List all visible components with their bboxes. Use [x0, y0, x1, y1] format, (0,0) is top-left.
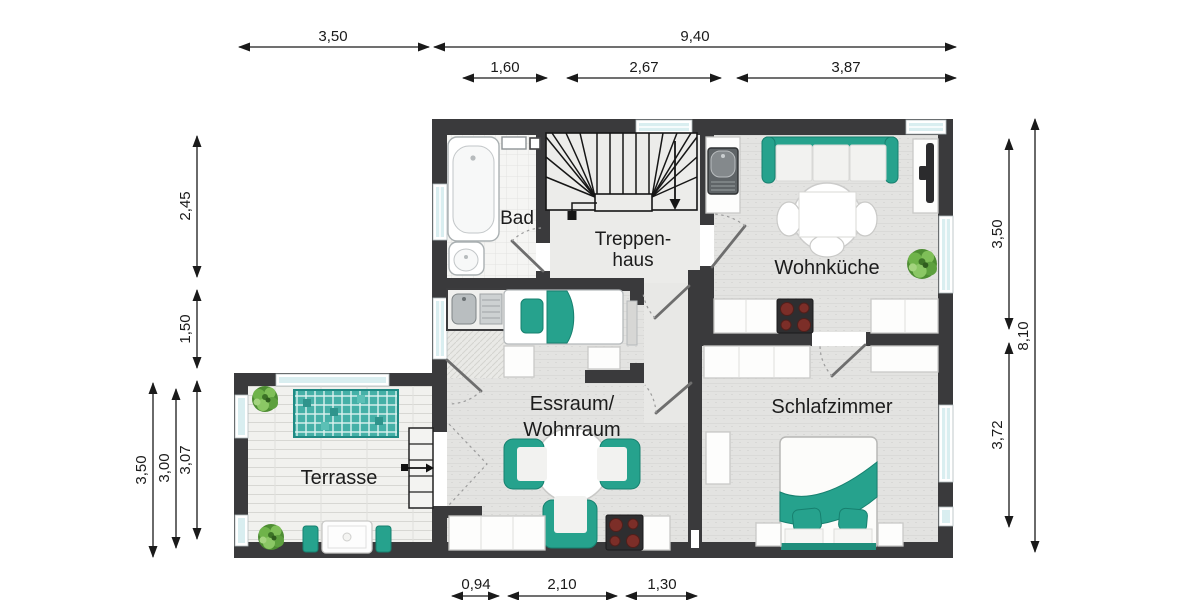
room-label-treppenhaus-2: haus — [612, 250, 653, 271]
window-terrace-top — [276, 374, 389, 386]
cabinet-tall — [706, 432, 730, 484]
bed-pillow — [521, 299, 543, 333]
dim-label-left-terrace-mid: 3,00 — [156, 453, 173, 482]
dim-label-right-bedroom: 3,72 — [989, 420, 1006, 449]
pool — [294, 390, 398, 437]
dim-label-right-total: 8,10 — [1015, 321, 1032, 350]
double-bed — [780, 437, 877, 550]
table-top — [799, 192, 856, 237]
nightstand-left — [756, 523, 781, 546]
armchair-left — [504, 439, 547, 489]
wall-kitchen-bottom-left — [702, 332, 812, 346]
wardrobe-left — [704, 346, 810, 378]
plant-icon — [907, 249, 937, 279]
room-label-bad: Bad — [500, 208, 534, 229]
terrace-chair-left — [303, 526, 318, 552]
dim-label-left-bad: 2,45 — [177, 191, 194, 220]
plant-icon — [252, 386, 278, 412]
window-left-entry — [433, 298, 447, 359]
window-top-kitchen — [906, 120, 946, 134]
dim-label-top-stair: 2,67 — [629, 59, 658, 76]
kitchen-sink-small — [447, 289, 507, 330]
toilet — [449, 242, 484, 275]
dim-label-bottom-hall: 1,30 — [647, 576, 676, 593]
dim-label-top-kitchen: 3,87 — [831, 59, 860, 76]
sofa — [762, 137, 898, 183]
dim-label-left-niche: 1,50 — [177, 314, 194, 343]
corridor-floor — [644, 283, 688, 423]
tv-sideboard — [913, 139, 938, 213]
dim-label-top-main: 9,40 — [680, 28, 709, 45]
armchair-bottom — [543, 496, 597, 548]
chair-right — [853, 202, 877, 236]
dim-label-top-bad: 1,60 — [490, 59, 519, 76]
tv-icon — [926, 143, 934, 203]
stair-start-marker — [568, 211, 577, 220]
chair-bottom — [810, 235, 844, 257]
window-right-small — [939, 507, 953, 526]
dim-label-bottom-door: 0,94 — [461, 576, 490, 593]
niche-cabinet-left — [504, 346, 534, 377]
nightstand-right — [878, 523, 903, 546]
window-terrace-left-upper — [235, 395, 248, 438]
dim-label-top-terrace: 3,50 — [318, 28, 347, 45]
terrace-table — [322, 521, 372, 553]
stove-hob-kitchen — [777, 299, 813, 333]
bath-shelf — [502, 137, 540, 149]
bed-blanket — [547, 291, 574, 343]
stair-landing — [595, 194, 652, 211]
stove-hob-essraum — [606, 515, 643, 550]
room-label-essraum-1: Essraum/ — [530, 393, 615, 415]
wall-slot — [691, 530, 699, 548]
window-right-kitchen — [939, 216, 953, 293]
dim-label-left-terrace-inner: 3,07 — [177, 445, 194, 474]
niche-cabinet-right — [588, 347, 620, 369]
wall-kitchen-bottom-right — [866, 332, 953, 346]
wall-divider-bedroom — [688, 270, 702, 558]
room-label-wohnkueche: Wohnküche — [774, 257, 879, 279]
dim-label-left-terrace-outer: 3,50 — [133, 455, 150, 484]
window-terrace-left-lower — [235, 515, 248, 546]
dim-label-right-kitchen: 3,50 — [989, 219, 1006, 248]
room-label-schlafzimmer: Schlafzimmer — [771, 396, 892, 418]
armchair-right — [597, 439, 640, 489]
terrace-chair-right — [376, 526, 391, 552]
chair-left — [777, 202, 801, 236]
bathtub — [448, 137, 499, 241]
floor-plan: Bad Treppen- haus Wohnküche Essraum/ Woh… — [0, 0, 1200, 600]
plant-icon — [258, 524, 284, 550]
room-label-treppenhaus-1: Treppen- — [595, 229, 671, 250]
sink-unit — [706, 137, 740, 213]
window-right-bedroom — [939, 405, 953, 482]
floor-plan-drawing: Bad Treppen- haus Wohnküche Essraum/ Woh… — [0, 0, 1200, 600]
single-bed — [504, 290, 637, 345]
niche-mat — [447, 331, 505, 378]
window-top-stairs — [636, 120, 692, 134]
window-left-bad — [433, 184, 447, 240]
staircase — [546, 133, 697, 220]
bed-footboard — [627, 301, 637, 345]
wardrobe-right — [871, 346, 938, 372]
wall-niche-bottom — [585, 370, 644, 383]
room-label-essraum-2: Wohnraum — [523, 419, 620, 441]
dim-label-bottom-dining: 2,10 — [547, 576, 576, 593]
room-label-terrasse: Terrasse — [301, 467, 378, 489]
